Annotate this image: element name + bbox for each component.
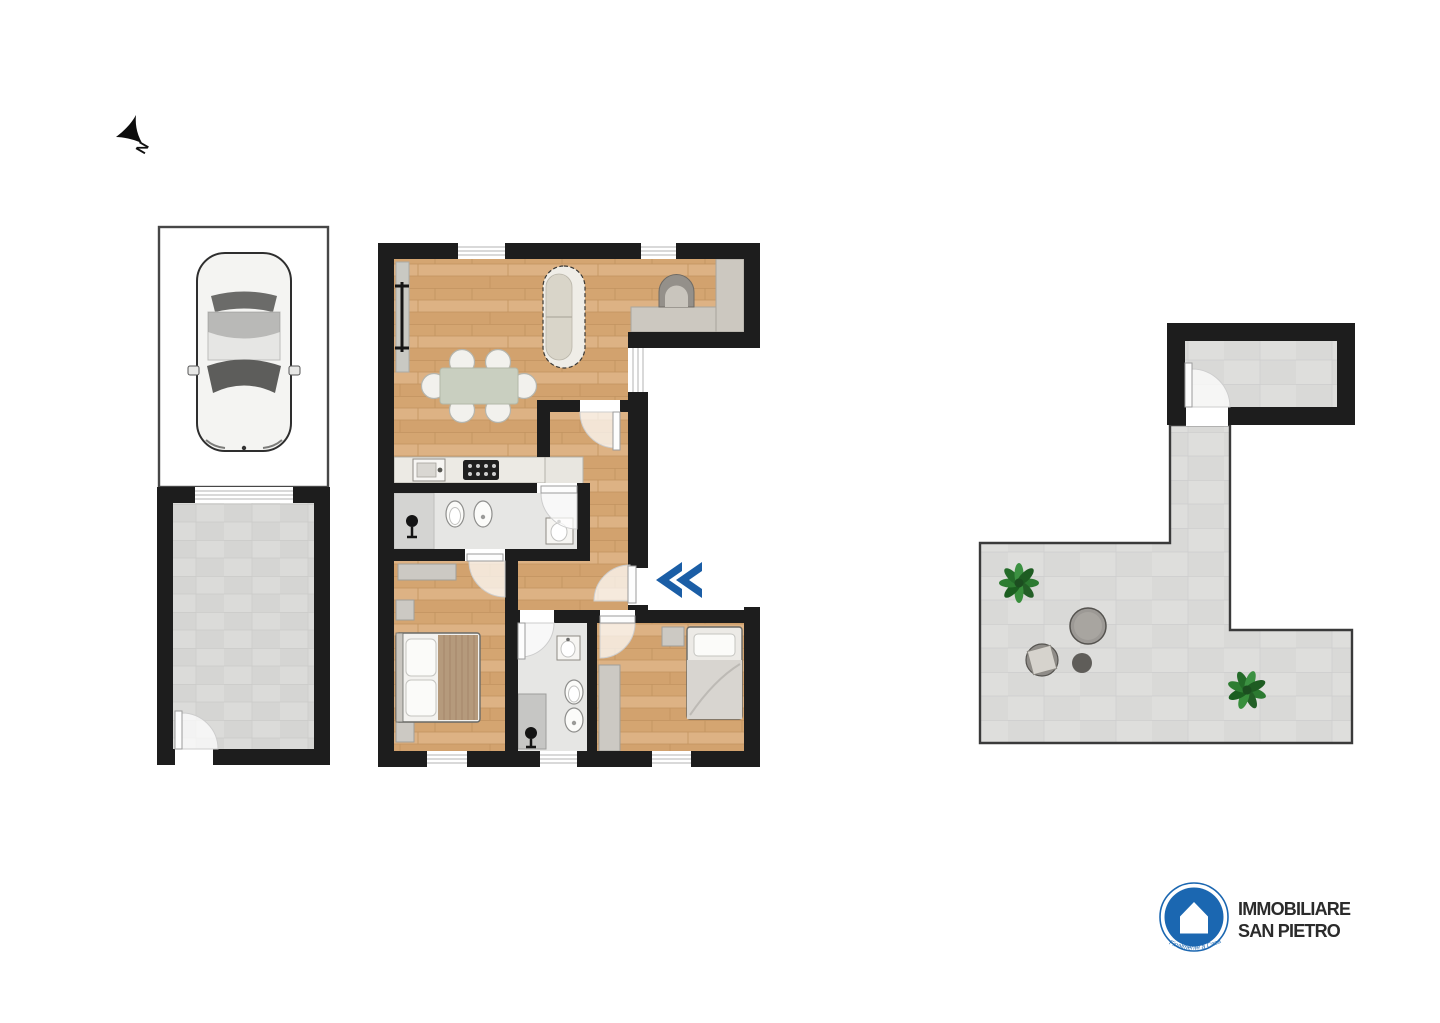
north-label: N — [133, 139, 153, 157]
bidet — [474, 501, 492, 527]
car-emblem — [242, 446, 246, 450]
parking-spot — [159, 227, 328, 487]
apartment-wall — [537, 400, 550, 457]
shower-head — [406, 515, 418, 527]
terrace-stool — [1026, 644, 1058, 676]
window — [641, 243, 676, 259]
north-arrow-icon — [116, 115, 142, 143]
sofa — [543, 266, 585, 368]
wardrobe — [599, 665, 620, 751]
car — [188, 253, 300, 451]
entrance-chevron-icon — [656, 562, 702, 598]
pillow — [406, 639, 436, 676]
window — [458, 243, 505, 259]
apartment-wall — [378, 243, 760, 259]
dining-table — [440, 368, 518, 404]
car-mirror-right — [289, 366, 300, 375]
apartment-wall — [505, 549, 518, 751]
terrace-room — [1167, 323, 1355, 426]
garage-floor — [173, 503, 314, 749]
bidet-drain — [572, 721, 576, 725]
floor-plan-canvas: N — [0, 0, 1440, 1018]
logo-line1: IMMOBILIARE — [1238, 899, 1351, 919]
terrace-table-top — [1074, 612, 1102, 640]
apartment-wall — [587, 623, 597, 751]
shower-head — [525, 727, 537, 739]
window — [628, 348, 648, 392]
apartment-wall — [628, 332, 760, 348]
apartment-wall — [518, 549, 590, 561]
car-roof-shade — [208, 312, 280, 339]
window — [540, 751, 577, 767]
logo-line2: SAN PIETRO — [1238, 921, 1341, 941]
nightstand — [396, 600, 414, 620]
apartment-wall — [628, 610, 760, 623]
wardrobe — [398, 564, 456, 580]
garage-wall-left — [157, 487, 173, 765]
apartment-wall — [577, 483, 590, 549]
window — [652, 751, 691, 767]
window — [427, 751, 467, 767]
bidet — [565, 708, 583, 732]
north-arrow: N — [116, 115, 153, 157]
washbasin — [557, 636, 580, 660]
nightstand — [396, 722, 414, 742]
car-mirror-left — [188, 366, 199, 375]
terrace-plant — [999, 563, 1039, 603]
double-bed — [396, 633, 480, 722]
terrace-stool — [1072, 653, 1092, 673]
toilet-bowl — [569, 686, 580, 702]
garage-door — [195, 487, 293, 503]
bidet-drain — [481, 515, 485, 519]
garage-wall-right — [314, 487, 330, 765]
single-bed — [687, 627, 742, 719]
radiator — [395, 262, 409, 372]
pillow — [406, 680, 436, 716]
apartment-floorplan — [378, 243, 760, 767]
cooktop — [463, 460, 499, 480]
toilet-bowl — [450, 508, 461, 525]
kitchen-sink — [413, 459, 445, 481]
nightstand — [662, 627, 684, 646]
garage — [157, 487, 330, 765]
terrace — [980, 323, 1355, 743]
pillow — [694, 634, 735, 656]
apartment-wall — [378, 243, 394, 767]
brand-logo: Finalmente a Casa IMMOBILIARE SAN PIETRO — [1158, 883, 1351, 952]
apartment-wall — [744, 607, 760, 767]
